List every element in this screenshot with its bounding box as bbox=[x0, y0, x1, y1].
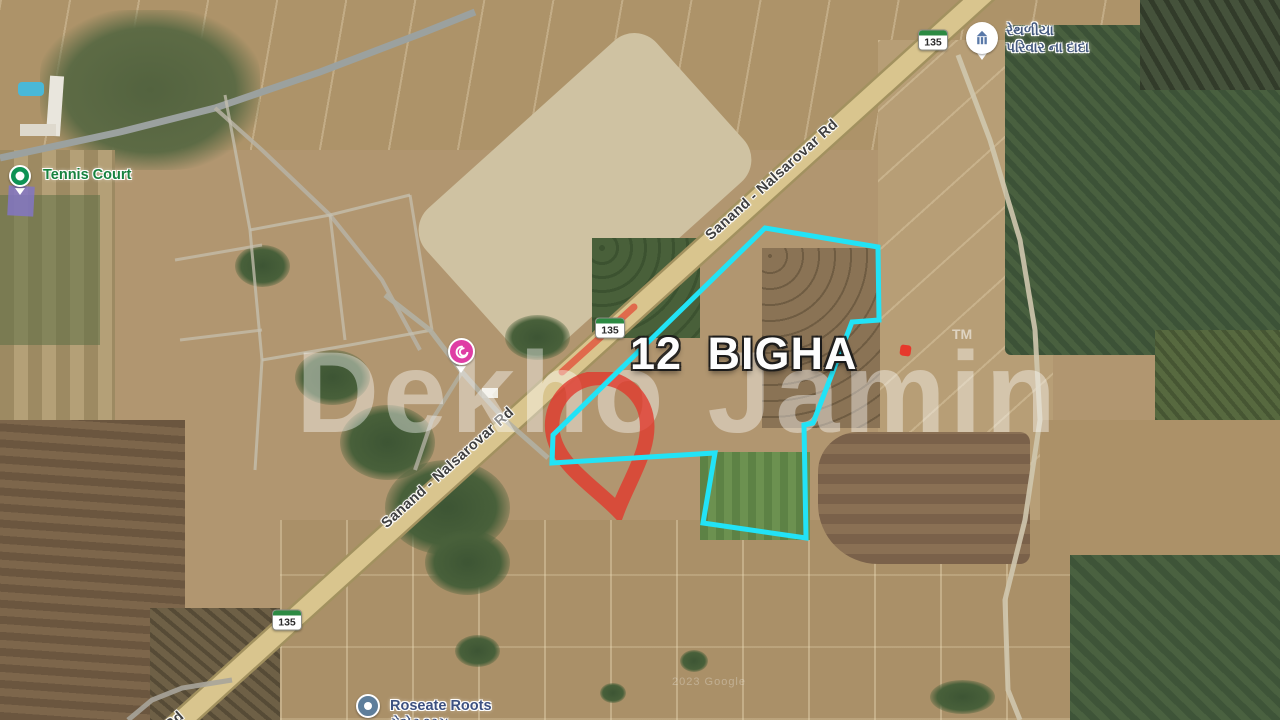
tennis-court-label[interactable]: Tennis Court bbox=[43, 167, 131, 183]
temple-icon bbox=[973, 30, 991, 46]
pin-tail-icon bbox=[15, 188, 25, 195]
roseate-roots-label[interactable]: Roseate Roots bbox=[390, 698, 492, 714]
temple-label[interactable]: રેથળીયા પરિવાર ના દાદા bbox=[1006, 22, 1089, 56]
pin-tail-icon bbox=[456, 366, 466, 373]
plot-boundary-polygon bbox=[552, 228, 879, 538]
pin-tail-icon bbox=[977, 53, 987, 60]
temple-pin[interactable] bbox=[966, 22, 998, 54]
pink-place-pin[interactable] bbox=[448, 338, 475, 365]
tennis-court-pin[interactable] bbox=[9, 165, 31, 187]
roseate-roots-label-gujarati: રોઝેટ રૂટ્સ bbox=[390, 715, 449, 720]
pin-dot-icon bbox=[364, 702, 372, 710]
pin-dot-icon bbox=[16, 172, 25, 181]
swirl-icon bbox=[453, 343, 471, 361]
plot-area-label: 12 BIGHA bbox=[630, 331, 858, 376]
roseate-roots-pin[interactable] bbox=[356, 694, 380, 718]
temple-label-line2: પરિવાર ના દાદા bbox=[1006, 39, 1089, 56]
satellite-map[interactable]: Sanand - Nalsarovar Rd Sanand - Nalsarov… bbox=[0, 0, 1280, 720]
temple-label-line1: રેથળીયા bbox=[1006, 22, 1089, 39]
